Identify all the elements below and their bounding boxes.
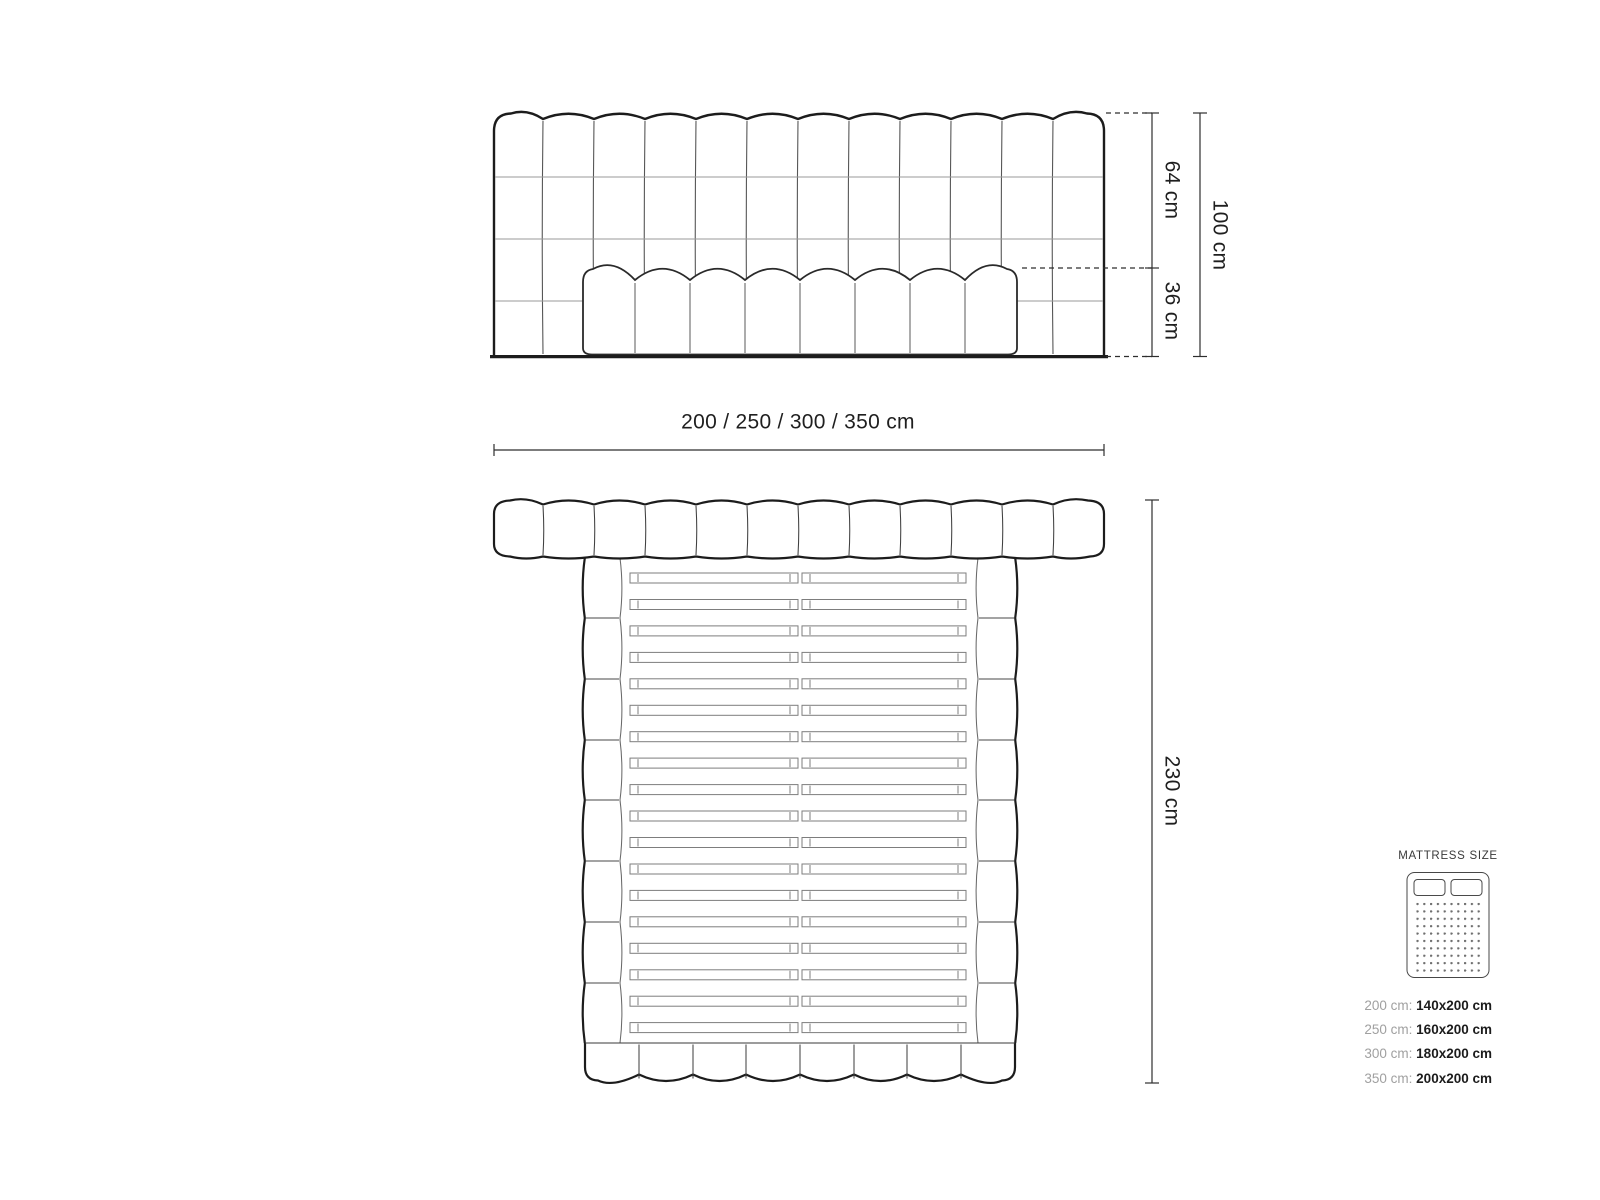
front-view	[490, 112, 1108, 357]
slat	[630, 970, 798, 980]
legend-title: MATTRESS SIZE	[1398, 850, 1498, 862]
slat	[802, 600, 966, 610]
rail-inner-left	[620, 558, 622, 1043]
width-options-label: 200 / 250 / 300 / 350 cm	[681, 411, 915, 434]
slat	[802, 838, 966, 848]
upper-height-label: 64 cm	[1161, 161, 1184, 220]
dimension-diagram-page: { "front_view": { "upper_height_label": …	[0, 0, 1600, 1200]
slat	[630, 811, 798, 821]
size-row: 300 cm: 180x200 cm	[1364, 1042, 1492, 1066]
slat	[630, 890, 798, 900]
slat	[630, 785, 798, 795]
rail-outer-left	[583, 558, 585, 1043]
size-row: 200 cm: 140x200 cm	[1364, 994, 1492, 1018]
mattress-size-value: 160x200 cm	[1416, 1022, 1492, 1037]
slat	[802, 758, 966, 768]
slat	[802, 943, 966, 953]
slat	[802, 1023, 966, 1033]
size-row: 250 cm: 160x200 cm	[1364, 1018, 1492, 1042]
top-view	[494, 499, 1104, 1083]
slat	[630, 917, 798, 927]
slat	[802, 732, 966, 742]
frame-size-label: 200 cm:	[1364, 998, 1412, 1013]
slat	[802, 996, 966, 1006]
slat	[630, 652, 798, 662]
mattress-size-value: 200x200 cm	[1416, 1071, 1492, 1086]
slat	[802, 864, 966, 874]
slat-group	[630, 573, 966, 1033]
rail-inner-right	[976, 558, 978, 1043]
slat	[630, 943, 798, 953]
length-label: 230 cm	[1161, 756, 1184, 827]
slat	[630, 838, 798, 848]
slat	[802, 890, 966, 900]
slat	[630, 732, 798, 742]
mattress-size-value: 180x200 cm	[1416, 1046, 1492, 1061]
mattress-icon	[1407, 872, 1490, 978]
slat	[802, 679, 966, 689]
width-dimension	[494, 444, 1104, 456]
slat	[802, 917, 966, 927]
length-dimension	[1145, 500, 1159, 1083]
slat	[630, 573, 798, 583]
slat	[630, 679, 798, 689]
mattress-dots-pattern	[1415, 901, 1483, 974]
slat	[630, 1023, 798, 1033]
slat	[630, 864, 798, 874]
slat	[802, 652, 966, 662]
slat	[630, 758, 798, 768]
lower-height-label: 36 cm	[1161, 282, 1184, 341]
slat	[630, 626, 798, 636]
frame-size-label: 300 cm:	[1364, 1046, 1412, 1061]
slat	[802, 705, 966, 715]
mattress-size-value: 140x200 cm	[1416, 998, 1492, 1013]
slat	[802, 626, 966, 636]
size-row: 350 cm: 200x200 cm	[1364, 1067, 1492, 1091]
slat	[802, 811, 966, 821]
pillow-icon	[1451, 879, 1483, 896]
size-table: 200 cm: 140x200 cm 250 cm: 160x200 cm 30…	[1364, 994, 1492, 1091]
slat	[802, 970, 966, 980]
slat	[802, 573, 966, 583]
frame-size-label: 250 cm:	[1364, 1022, 1412, 1037]
mattress-size-legend: MATTRESS SIZE 200 cm: 140x200 cm 250 cm:…	[1356, 845, 1493, 1095]
rail-outer-right	[1015, 558, 1017, 1043]
frame-size-label: 350 cm:	[1364, 1071, 1412, 1086]
pillow-icon	[1414, 879, 1446, 896]
slat	[802, 785, 966, 795]
slat	[630, 996, 798, 1006]
slat	[630, 705, 798, 715]
total-height-label: 100 cm	[1209, 200, 1232, 271]
slat	[630, 600, 798, 610]
